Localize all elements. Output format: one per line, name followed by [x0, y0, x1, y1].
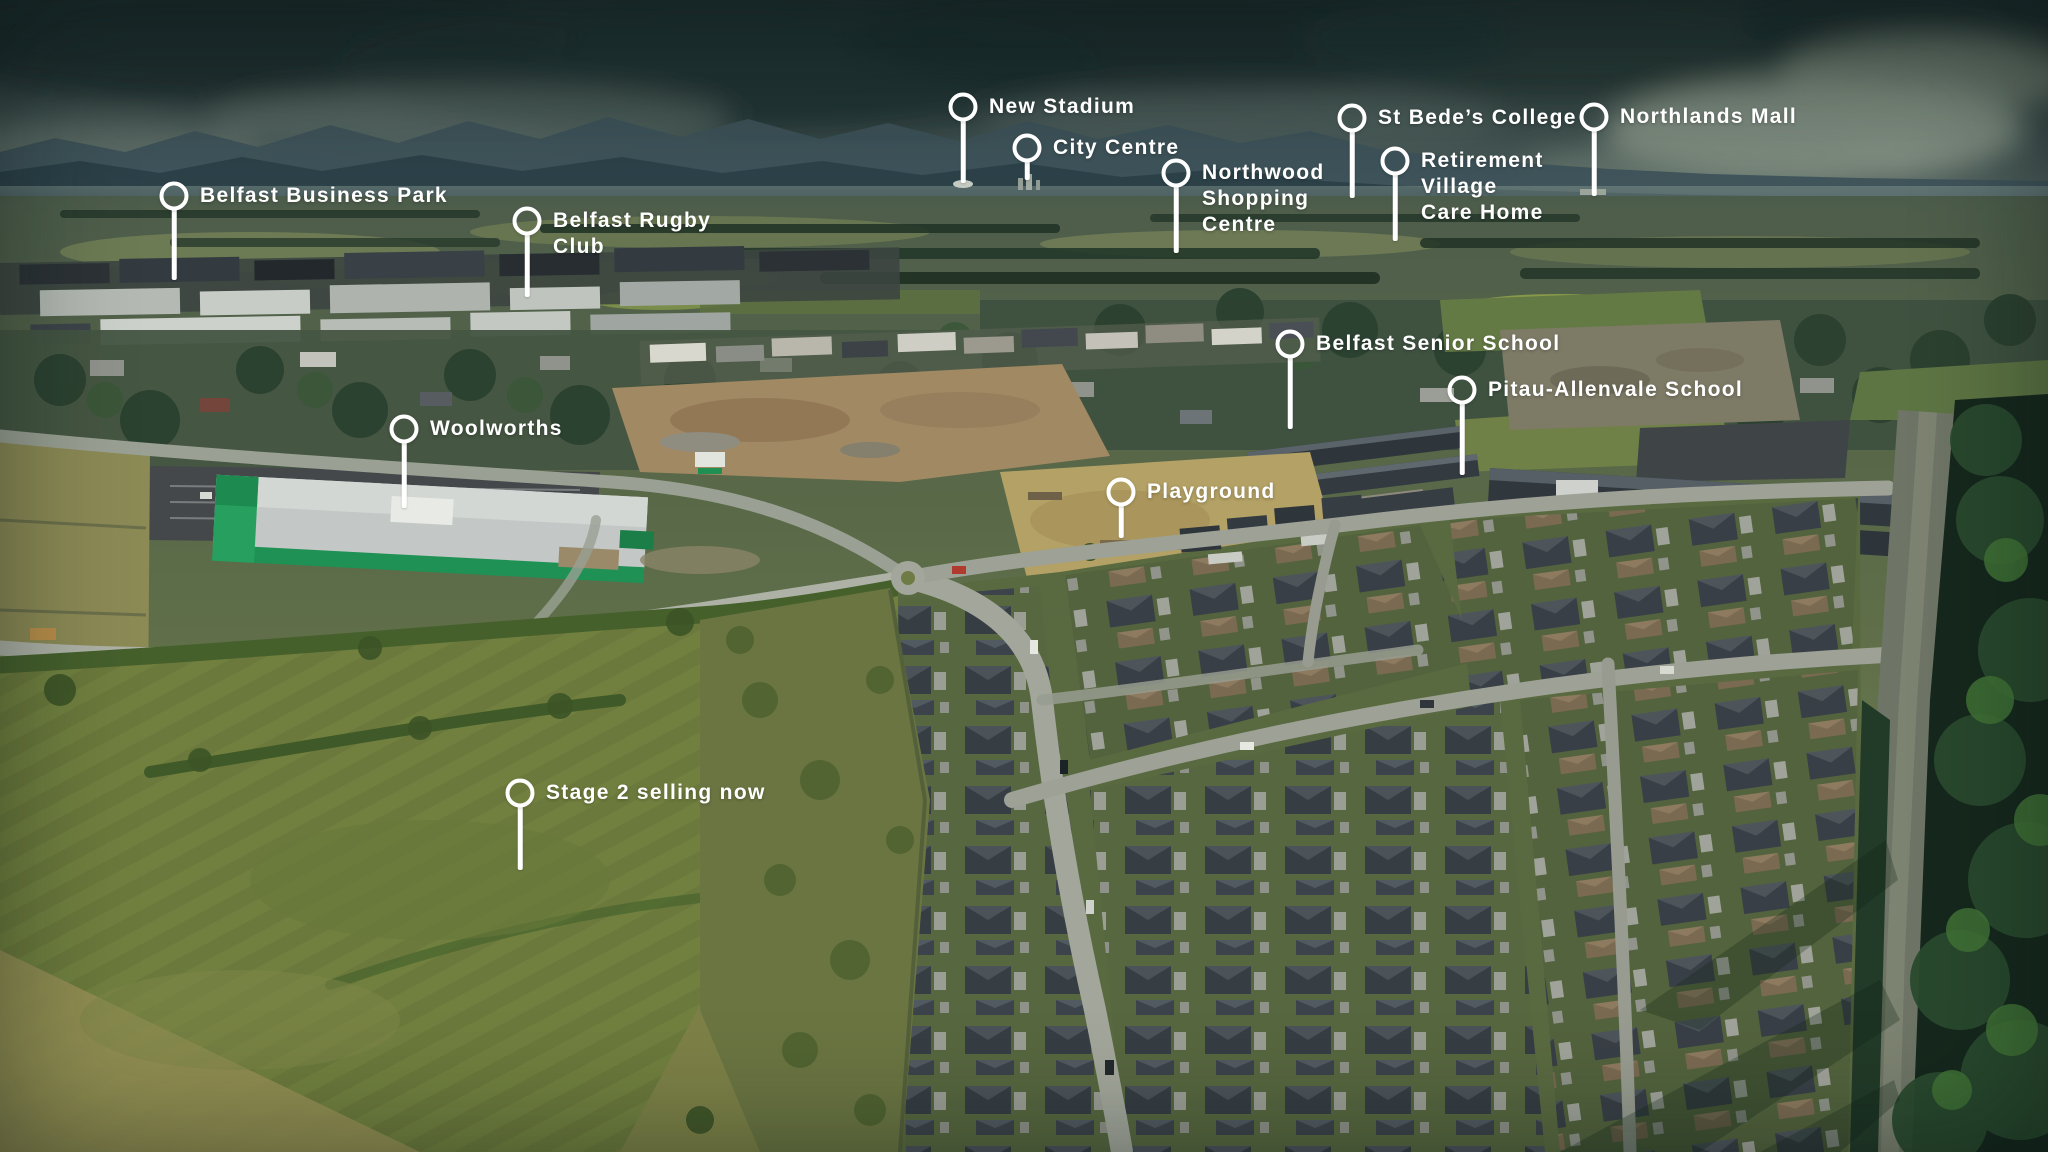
pin-circle-icon — [949, 93, 978, 122]
pin-circle-icon — [1448, 376, 1477, 405]
pin-stem — [1460, 402, 1465, 475]
pin-label: RetirementVillageCare Home — [1421, 148, 1544, 226]
pin-label-line: Retirement — [1421, 148, 1544, 174]
aerial-map-stage: Belfast Business Park Belfast RugbyClub … — [0, 0, 2048, 1152]
pin-label-line: Belfast Business Park — [200, 183, 448, 209]
pin-label-line: Belfast Senior School — [1316, 331, 1560, 357]
pin-circle-icon — [160, 182, 189, 211]
pin-stem — [1025, 160, 1030, 180]
pin-label: Northlands Mall — [1620, 104, 1797, 130]
pin-circle-icon — [1276, 330, 1305, 359]
pin-label-line: Northlands Mall — [1620, 104, 1797, 130]
pin-label-line: Club — [553, 234, 711, 260]
pin-label-line: St Bede’s College — [1378, 105, 1577, 131]
pin-circle-icon — [390, 415, 419, 444]
pin-stem — [1119, 504, 1124, 538]
pin-label: Belfast RugbyClub — [553, 208, 711, 260]
pin-stem — [172, 208, 177, 280]
pin-label-line: Centre — [1202, 212, 1325, 238]
pin-layer: Belfast Business Park Belfast RugbyClub … — [0, 0, 2048, 1152]
pin-label-line: Woolworths — [430, 416, 563, 442]
pin-circle-icon — [1162, 159, 1191, 188]
pin-circle-icon — [1013, 134, 1042, 163]
pin-label: New Stadium — [989, 94, 1135, 120]
pin-label: NorthwoodShoppingCentre — [1202, 160, 1325, 238]
pin-label-line: Playground — [1147, 479, 1276, 505]
pin-label-line: Northwood — [1202, 160, 1325, 186]
pin-stem — [1393, 173, 1398, 241]
pin-stem — [402, 441, 407, 508]
pin-label-line: Shopping — [1202, 186, 1325, 212]
pin-circle-icon — [1381, 147, 1410, 176]
pin-circle-icon — [1338, 104, 1367, 133]
pin-label: Belfast Business Park — [200, 183, 448, 209]
pin-label: Woolworths — [430, 416, 563, 442]
pin-circle-icon — [513, 207, 542, 236]
pin-label: Belfast Senior School — [1316, 331, 1560, 357]
pin-label-line: Pitau-Allenvale School — [1488, 377, 1743, 403]
pin-label: City Centre — [1053, 135, 1179, 161]
pin-label: St Bede’s College — [1378, 105, 1577, 131]
pin-circle-icon — [1107, 478, 1136, 507]
pin-label-line: Care Home — [1421, 200, 1544, 226]
pin-label-line: New Stadium — [989, 94, 1135, 120]
pin-stem — [525, 233, 530, 297]
pin-label: Pitau-Allenvale School — [1488, 377, 1743, 403]
pin-label-line: Village — [1421, 174, 1544, 200]
pin-circle-icon — [1580, 103, 1609, 132]
pin-stem — [961, 119, 966, 183]
pin-stem — [1174, 185, 1179, 253]
pin-label: Playground — [1147, 479, 1276, 505]
pin-label-line: Stage 2 selling now — [546, 780, 766, 806]
pin-label-line: City Centre — [1053, 135, 1179, 161]
pin-stem — [1592, 129, 1597, 196]
pin-stem — [518, 805, 523, 870]
pin-label: Stage 2 selling now — [546, 780, 766, 806]
pin-stem — [1288, 356, 1293, 429]
pin-circle-icon — [506, 779, 535, 808]
pin-label-line: Belfast Rugby — [553, 208, 711, 234]
pin-stem — [1350, 130, 1355, 198]
